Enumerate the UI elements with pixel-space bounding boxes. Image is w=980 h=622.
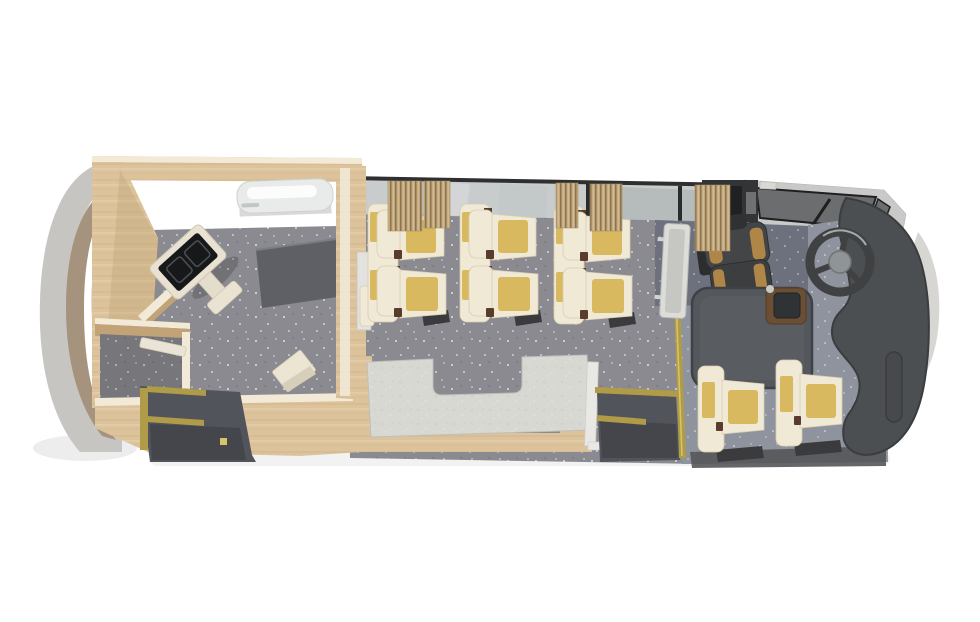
bus-interior-render [0,0,980,622]
room-right-wall-edge [340,168,350,396]
render-canvas [0,0,980,622]
console-knob [766,285,774,293]
window-reflection-3 [616,187,700,222]
dashboard-vent-pill [886,352,902,422]
curtain-3 [556,183,578,228]
rear-gold-bracket [220,438,227,445]
curtain-2 [424,181,450,228]
window-reflection-2 [498,184,548,218]
mirror-housing [760,182,776,190]
front-well-lower-step [600,420,678,458]
rear-gold-vertical [140,388,148,450]
overhead-vent [746,192,756,214]
curtain-1 [388,181,422,231]
window-divider-2 [678,186,682,224]
wheel-spoke-top [842,235,845,251]
rear-stairwell [140,386,256,462]
shifter-console [766,285,806,324]
panel-leg-bottom [654,295,661,299]
console-screen [774,293,800,318]
panel-leg-top [657,237,664,241]
curtain-4 [590,184,622,231]
ac-highlight [247,185,317,199]
wall-ac-unit [236,178,333,216]
ac-vent [241,203,259,208]
curtain-5 [695,185,730,251]
rear-well-lower-step [150,424,246,460]
closet-wall-right [182,332,190,396]
